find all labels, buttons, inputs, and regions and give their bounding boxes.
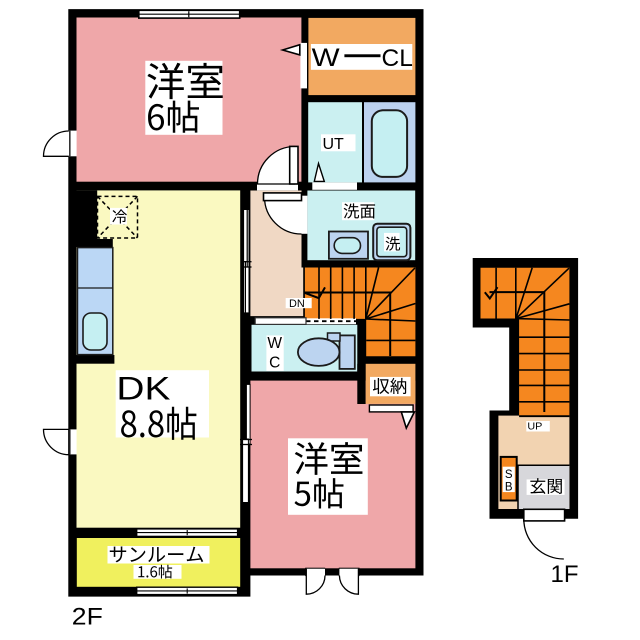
svg-text:W: W xyxy=(312,44,340,72)
svg-text:DK: DK xyxy=(116,371,170,407)
svg-text:2F: 2F xyxy=(72,604,103,631)
svg-text:DN: DN xyxy=(289,298,305,310)
svg-text:1F: 1F xyxy=(551,561,579,588)
svg-text:W: W xyxy=(267,335,282,352)
svg-text:B: B xyxy=(505,482,513,494)
svg-text:UP: UP xyxy=(527,421,542,432)
svg-text:C: C xyxy=(269,354,280,371)
svg-text:CL: CL xyxy=(382,45,413,72)
svg-text:S: S xyxy=(505,469,513,481)
svg-text:UT: UT xyxy=(323,136,345,153)
